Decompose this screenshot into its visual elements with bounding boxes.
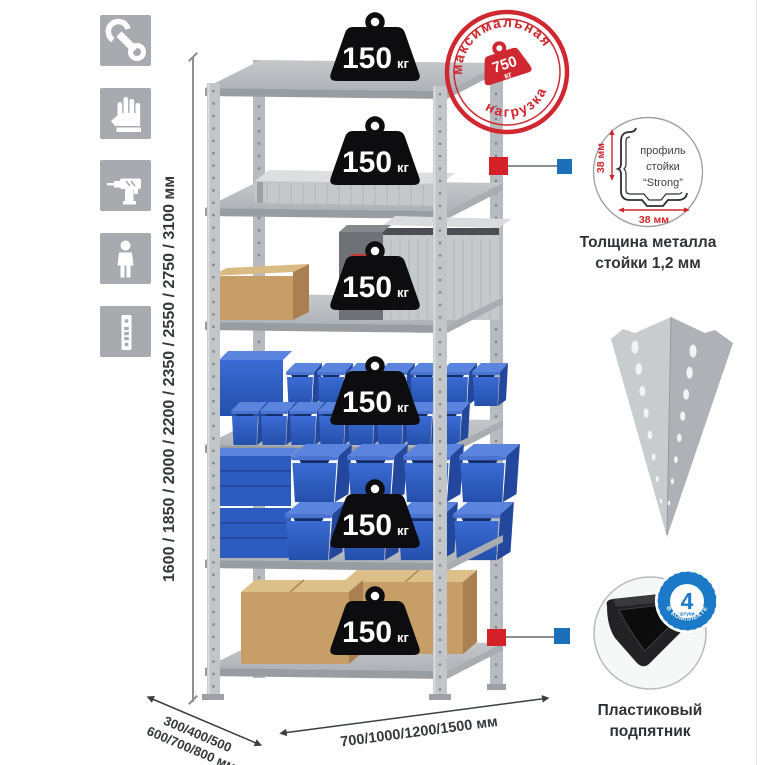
svg-text:700/1000/1200/1500 мм: 700/1000/1200/1500 мм xyxy=(339,714,498,751)
svg-text:150: 150 xyxy=(342,509,392,542)
wrench-icon xyxy=(100,15,151,66)
infographic-canvas: 1600 / 1850 / 2000 / 2200 / 2350 / 2550 … xyxy=(0,0,765,765)
max-load-stamp: максимальная нагрузка 750 кг xyxy=(441,6,573,143)
drill-icon xyxy=(100,160,151,211)
svg-text:38 мм: 38 мм xyxy=(639,214,669,226)
connector-red-square-bottom xyxy=(487,629,506,646)
corner-post-photo xyxy=(605,305,755,550)
connector-blue-square-bottom xyxy=(554,628,570,644)
profile-detail: 38 мм 38 мм профиль стойки “Strong” xyxy=(590,114,706,235)
connector-red-square-top xyxy=(489,157,508,175)
foot-caption: Пластиковый подпятник xyxy=(565,700,735,742)
gloves-icon xyxy=(100,88,151,139)
weight-badge: 150 кг xyxy=(320,239,430,324)
connector-line-bottom xyxy=(506,636,554,638)
svg-text:кг: кг xyxy=(397,56,410,71)
connector-blue-square-top xyxy=(557,159,572,174)
weight-badge: 150 кг xyxy=(320,477,430,562)
svg-text:профиль: профиль xyxy=(640,145,686,157)
person-icon xyxy=(100,233,151,284)
svg-text:кг: кг xyxy=(397,523,410,538)
weight-ring-icon xyxy=(368,15,382,29)
svg-text:кг: кг xyxy=(397,630,410,645)
plastic-foot-photo: 4 штуки В КОМПЛЕКТЕ xyxy=(585,566,725,711)
badge-4-per-set: 4 штуки В КОМПЛЕКТЕ xyxy=(655,569,719,633)
svg-text:кг: кг xyxy=(397,400,410,415)
connector-line-top xyxy=(508,165,557,167)
profile-caption: Толщина металла стойки 1,2 мм xyxy=(563,232,733,274)
height-dimension-label: 1600 / 1850 / 2000 / 2200 / 2350 / 2550 … xyxy=(161,119,183,639)
svg-text:кг: кг xyxy=(397,160,410,175)
weight-badge: 150 кг xyxy=(320,114,430,199)
weight-badge: 150 кг xyxy=(320,584,430,669)
svg-text:“Strong”: “Strong” xyxy=(643,177,683,189)
svg-text:150: 150 xyxy=(342,42,392,75)
page-edge-line xyxy=(756,0,757,765)
svg-text:150: 150 xyxy=(342,386,392,419)
perforated-post-icon xyxy=(100,306,151,357)
svg-text:150: 150 xyxy=(342,146,392,179)
weight-badge: 150 кг xyxy=(320,10,430,95)
svg-text:стойки: стойки xyxy=(646,161,680,173)
svg-text:4: 4 xyxy=(681,588,694,614)
svg-text:150: 150 xyxy=(342,271,392,304)
svg-text:кг: кг xyxy=(397,285,410,300)
svg-text:38 мм: 38 мм xyxy=(595,143,607,173)
svg-text:150: 150 xyxy=(342,616,392,649)
weight-badge: 150 кг xyxy=(320,354,430,439)
